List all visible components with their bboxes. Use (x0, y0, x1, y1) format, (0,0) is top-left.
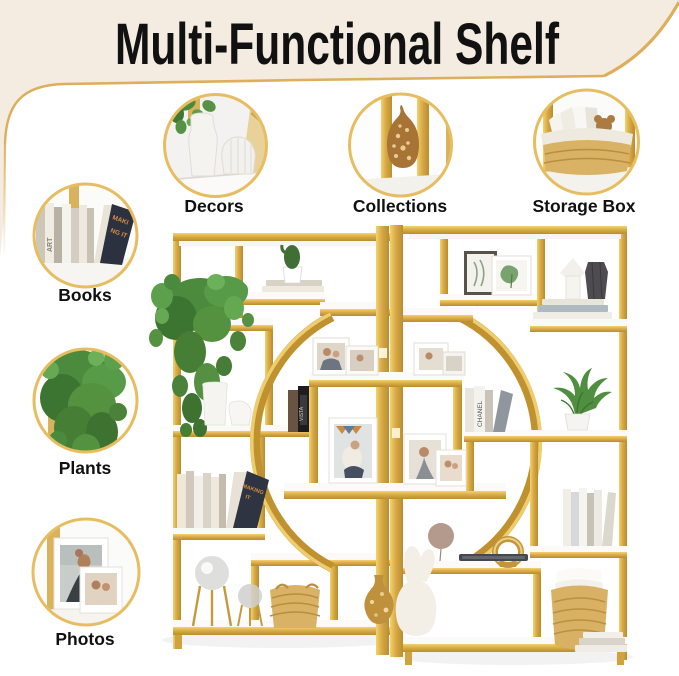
svg-text:Decors: Decors (184, 196, 244, 216)
svg-text:Photos: Photos (55, 629, 115, 649)
svg-text:Collections: Collections (353, 196, 448, 216)
svg-text:CHANEL: CHANEL (477, 400, 484, 427)
svg-text:Books: Books (58, 285, 112, 305)
svg-text:ART: ART (47, 237, 54, 252)
svg-text:VISTA: VISTA (299, 406, 305, 421)
svg-text:Storage Box: Storage Box (532, 196, 635, 216)
svg-text:Plants: Plants (59, 458, 112, 478)
svg-text:Multi-Functional Shelf: Multi-Functional Shelf (115, 12, 559, 77)
